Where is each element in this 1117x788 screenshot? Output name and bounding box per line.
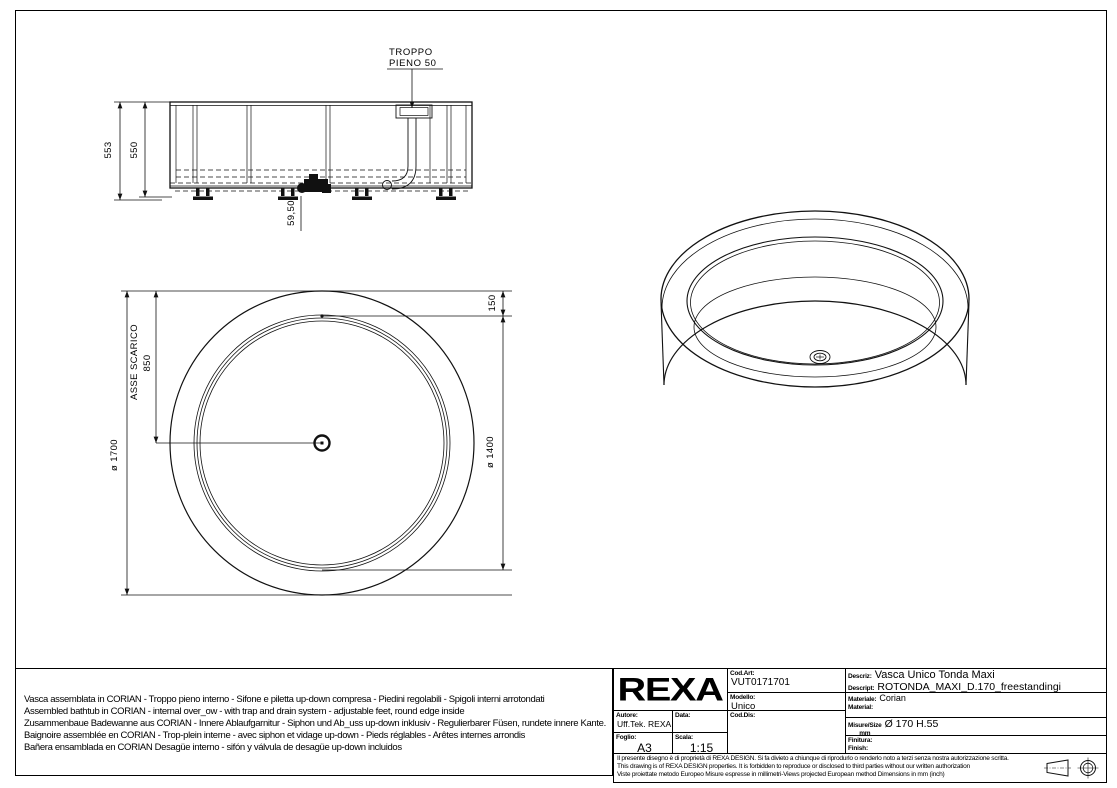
finitura-cell: Finitura: Finish: [846, 736, 1106, 754]
notes-block: Vasca assemblata in CORIAN - Troppo pien… [15, 668, 613, 776]
autore-label: Autore: [614, 711, 672, 719]
title-block: REXA Cod.Art: VUT0171701 Modello: Unico … [613, 668, 1107, 783]
dim-150: 150 [487, 294, 498, 311]
misure-cell: Misure/Size mm Ø 170 H.55 [846, 718, 1106, 736]
finish-label: Finish: [846, 744, 1106, 752]
note-line-es: Bañera ensamblada en CORIAN Desagüe inte… [24, 742, 606, 754]
cod-dis-cell: Cod.Dis: [728, 711, 846, 754]
data-cell: Data: [673, 711, 728, 733]
disclaimer-line-2: This drawing is of REXA DESIGN propertie… [617, 763, 1042, 771]
modello-value: Unico [728, 701, 845, 711]
cod-art-value: VUT0171701 [728, 677, 845, 688]
callout-troppo-line2: PIENO 50 [389, 58, 437, 69]
plan-view: ø 1700 ASSE SCARICO 850 150 ø 1400 [109, 291, 512, 595]
materiale-value: Corian [879, 693, 906, 703]
logo-cell: REXA [614, 669, 728, 711]
scala-cell: Scala: 1:15 [673, 733, 728, 754]
scala-label: Scala: [673, 733, 727, 741]
foglio-value: A3 [614, 741, 672, 754]
disclaimer-line-3: Viste proiettate metodo Europeo Misure e… [617, 771, 1042, 779]
descript-label: Descript: [846, 684, 874, 692]
disclaimer-line-1: Il presente disegno è di proprietà di RE… [617, 755, 1042, 763]
side-view: TROPPO PIENO 50 553 550 [103, 47, 472, 231]
cod-art-label: Cod.Art: [728, 669, 845, 677]
note-line-fr: Baignoire assemblée en CORIAN - Trop-ple… [24, 730, 606, 742]
misure-label: Misure/Size [846, 721, 882, 729]
descriz-value: Vasca Unico Tonda Maxi [875, 669, 995, 681]
autore-cell: Autore: Uff.Tek. REXA [614, 711, 673, 733]
misure-unit-label: mm [846, 729, 882, 736]
dim-1400: ø 1400 [485, 436, 496, 468]
scala-value: 1:15 [673, 741, 727, 754]
dim-59-50: 59,50 [286, 200, 297, 226]
modello-cell: Modello: Unico [728, 693, 846, 711]
dim-850: 850 [142, 354, 153, 371]
misure-value: Ø 170 H.55 [885, 718, 939, 730]
autore-value: Uff.Tek. REXA [614, 719, 672, 729]
isometric-view [661, 211, 969, 387]
descript-value: ROTONDA_MAXI_D.170_freestandingi [877, 681, 1061, 693]
drawing-area: TROPPO PIENO 50 553 550 [0, 0, 1117, 660]
label-asse-scarico: ASSE SCARICO [129, 324, 140, 400]
callout-troppo-line1: TROPPO [389, 47, 433, 58]
note-line-it: Vasca assemblata in CORIAN - Troppo pien… [24, 694, 606, 706]
cod-dis-label: Cod.Dis: [728, 711, 845, 719]
dim-553: 553 [103, 141, 114, 158]
dim-1700: ø 1700 [109, 439, 120, 471]
materiale-label: Materiale: [846, 695, 876, 703]
descriz-cell: Descriz: Vasca Unico Tonda Maxi Descript… [846, 669, 1106, 693]
note-line-en: Assembled bathtub in CORIAN - internal o… [24, 706, 606, 718]
rexa-logo: REXA [618, 673, 723, 706]
disclaimer-strip: Il presente disegno è di proprietà di RE… [614, 754, 1106, 782]
first-angle-projection-icon [1044, 757, 1102, 779]
drawing-sheet: TROPPO PIENO 50 553 550 [0, 0, 1117, 788]
material-label: Material: [846, 703, 1106, 711]
finitura-label: Finitura: [846, 736, 1106, 744]
foglio-cell: Foglio: A3 [614, 733, 673, 754]
modello-label: Modello: [728, 693, 845, 701]
dim-550: 550 [129, 141, 140, 158]
data-label: Data: [673, 711, 727, 719]
iso-drain [810, 351, 830, 364]
cod-art-cell: Cod.Art: VUT0171701 [728, 669, 846, 693]
foglio-label: Foglio: [614, 733, 672, 741]
note-line-de: Zusammenbaue Badewanne aus CORIAN - Inne… [24, 718, 606, 730]
descriz-label: Descriz: [846, 672, 872, 680]
materiale-cell: Materiale: Corian Material: [846, 693, 1106, 718]
